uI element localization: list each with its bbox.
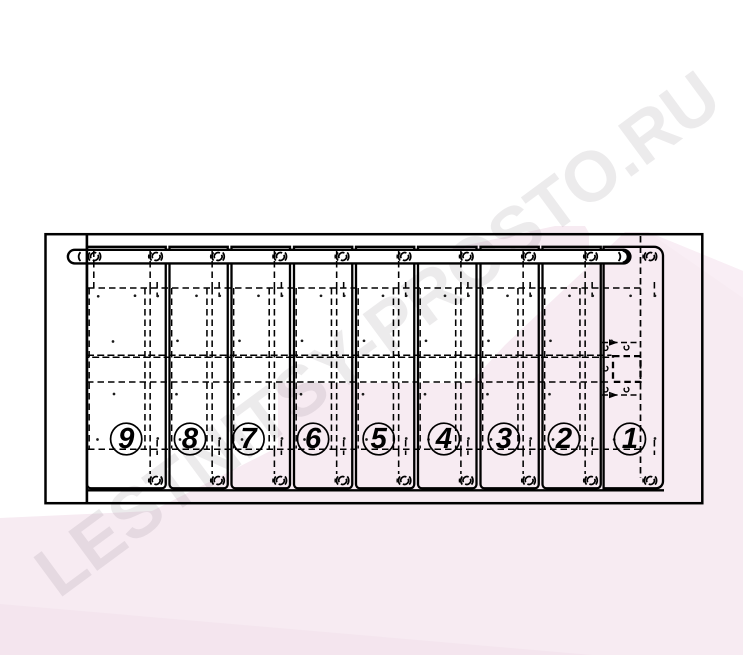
svg-text:2: 2: [555, 422, 572, 455]
svg-text:6: 6: [305, 422, 322, 455]
svg-text:4: 4: [435, 422, 452, 455]
svg-text:8: 8: [182, 422, 199, 455]
svg-text:7: 7: [240, 422, 258, 455]
svg-text:1: 1: [622, 422, 638, 455]
svg-text:9: 9: [118, 422, 135, 455]
svg-text:5: 5: [370, 422, 387, 455]
svg-text:3: 3: [496, 422, 512, 455]
